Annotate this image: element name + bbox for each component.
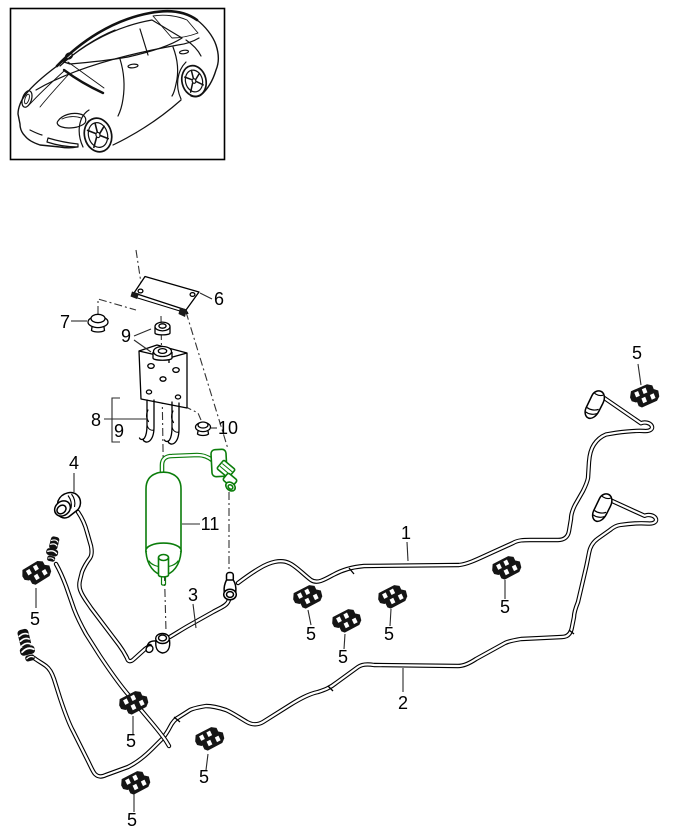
svg-text:1: 1 <box>401 523 411 543</box>
svg-text:8: 8 <box>91 410 101 430</box>
svg-text:5: 5 <box>127 810 137 830</box>
svg-text:5: 5 <box>199 767 209 787</box>
svg-text:6: 6 <box>214 289 224 309</box>
svg-text:5: 5 <box>384 624 394 644</box>
svg-text:5: 5 <box>306 624 316 644</box>
svg-text:2: 2 <box>398 693 408 713</box>
svg-text:9: 9 <box>114 421 124 441</box>
svg-text:5: 5 <box>126 731 136 751</box>
svg-text:5: 5 <box>338 647 348 667</box>
svg-text:4: 4 <box>69 453 79 473</box>
svg-text:7: 7 <box>60 312 70 332</box>
svg-text:11: 11 <box>201 514 220 534</box>
svg-text:5: 5 <box>632 343 642 363</box>
svg-text:5: 5 <box>30 609 40 629</box>
svg-text:9: 9 <box>121 326 131 346</box>
svg-text:5: 5 <box>500 597 510 617</box>
svg-text:10: 10 <box>218 418 238 438</box>
svg-text:3: 3 <box>188 585 198 605</box>
